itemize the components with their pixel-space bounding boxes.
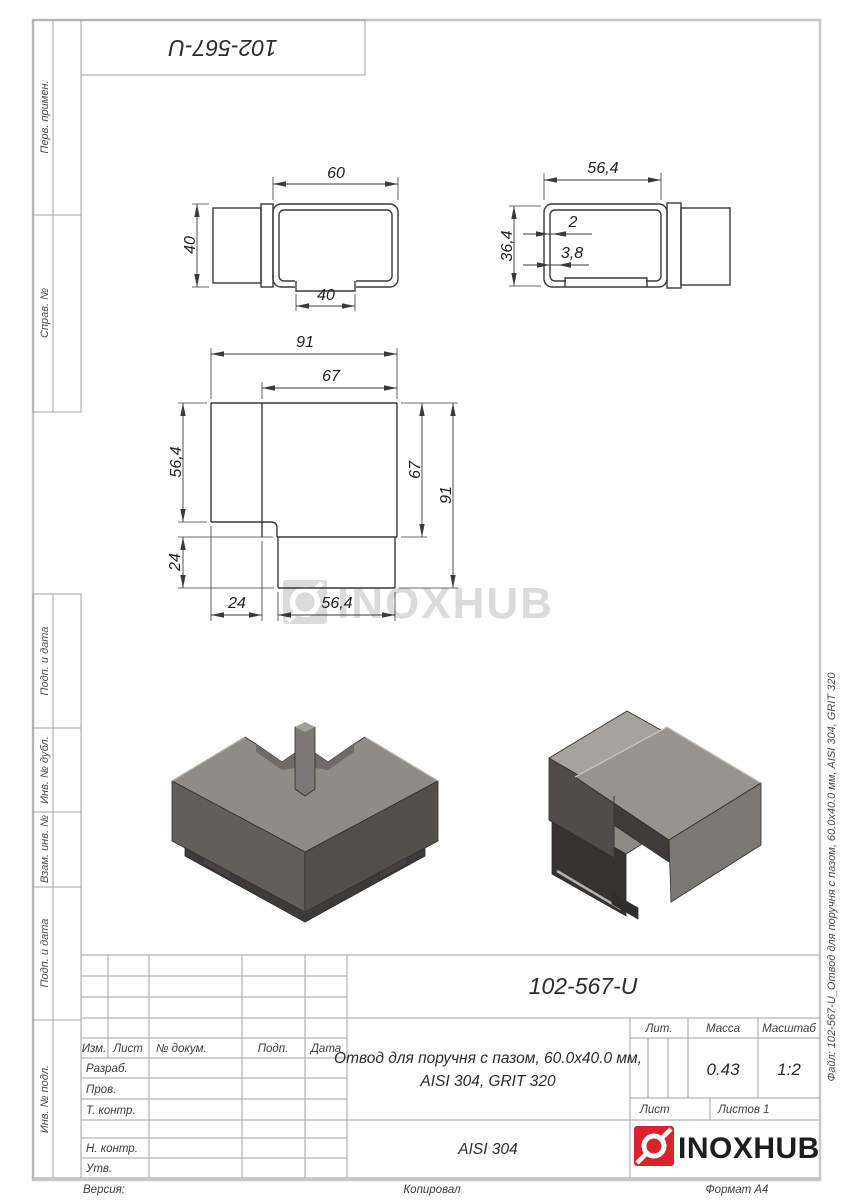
sheets-label: Листов 1 [717,1104,769,1116]
rev-col-podp: Подп. [258,1043,289,1055]
dim-plan-bottom-left: 24 [227,595,246,612]
lit-label: Лит. [645,1023,673,1035]
staff-row-label: Т. контр. [86,1105,136,1117]
dim-side-groove: 3,8 [561,245,583,262]
scale-value: 1:2 [777,1060,801,1079]
material: AISI 304 [457,1141,518,1158]
dim-front-width: 60 [327,165,345,182]
scale-label: Масштаб [762,1023,816,1035]
dim-plan-right-total: 91 [438,486,455,504]
technical-drawing-canvas: INOXHUB Перв. примен. Справ. № Подп. и д… [0,0,851,1200]
drawing-sheet: INOXHUB Перв. примен. Справ. № Подп. и д… [0,0,851,1200]
rev-col-doc: № докум. [156,1043,207,1055]
rev-col-list: Лист [112,1043,143,1055]
dim-plan-right-inner: 67 [407,460,424,479]
part-title-line2: AISI 304, GRIT 320 [419,1073,556,1090]
top-doc-number: 102-567-U [168,35,277,61]
dim-side-width: 56,4 [587,160,618,177]
staff-row-label: Н. контр. [86,1143,138,1155]
plan-view: 91 67 56,4 24 24 56,4 67 91 [167,334,458,621]
inoxhub-logo-text: INOXHUB [678,1132,820,1165]
front-view: 60 40 40 [182,165,398,311]
sidebar-label: Подп. и дата [39,919,51,988]
dim-front-slot: 40 [317,287,335,304]
copied-label: Копировал [403,1184,461,1196]
dim-plan-total-width: 91 [296,334,314,351]
sidebar-label: Справ. № [39,288,51,338]
sidebar-label: Перв. примен. [39,80,51,153]
sidebar-label: Подп. и дата [39,627,51,696]
iso-view-bottom [172,722,438,922]
sheet-label: Лист [639,1104,670,1116]
part-number: 102-567-U [529,973,638,999]
dim-plan-inner-width: 67 [322,368,341,385]
mass-label: Масса [706,1023,740,1035]
sidebar-label: Взам. инв. № [39,815,51,883]
sidebar-label: Инв. № подл. [39,1065,51,1133]
version-label: Версия: [83,1184,125,1196]
staff-row-label: Разраб. [86,1063,128,1075]
sidebar: Перв. примен. Справ. № Подп. и дата Инв.… [33,20,81,1178]
dim-side-wall: 2 [568,214,578,231]
dim-front-height: 40 [182,236,199,254]
file-note: Файл: 102-567-U_Отвод для поручня с пазо… [826,672,838,1082]
iso-view-top [549,711,761,919]
part-title-line1: Отвод для поручня с пазом, 60.0х40.0 мм, [334,1050,642,1067]
side-view: 56,4 36,4 2 3,8 [499,160,730,288]
dim-plan-tab-height: 24 [167,553,184,572]
sidebar-label: Инв. № дубл. [39,736,51,804]
title-block: Изм. Лист № докум. Подп. Дата Разраб. Пр… [81,955,820,1178]
inoxhub-logo: INOXHUB [634,1126,820,1166]
dim-plan-bottom-slot: 56,4 [321,595,352,612]
watermark-text: INOXHUB [337,579,554,628]
staff-row-label: Пров. [86,1084,116,1096]
dim-side-height: 36,4 [499,230,516,261]
top-doc-number-box: 102-567-U [81,20,365,75]
format-label: Формат А4 [706,1184,769,1196]
mass-value: 0.43 [706,1060,740,1079]
dim-plan-left-height: 56,4 [168,446,185,477]
staff-row-label: Утв. [85,1163,112,1175]
rev-col-izm: Изм. [82,1043,107,1055]
